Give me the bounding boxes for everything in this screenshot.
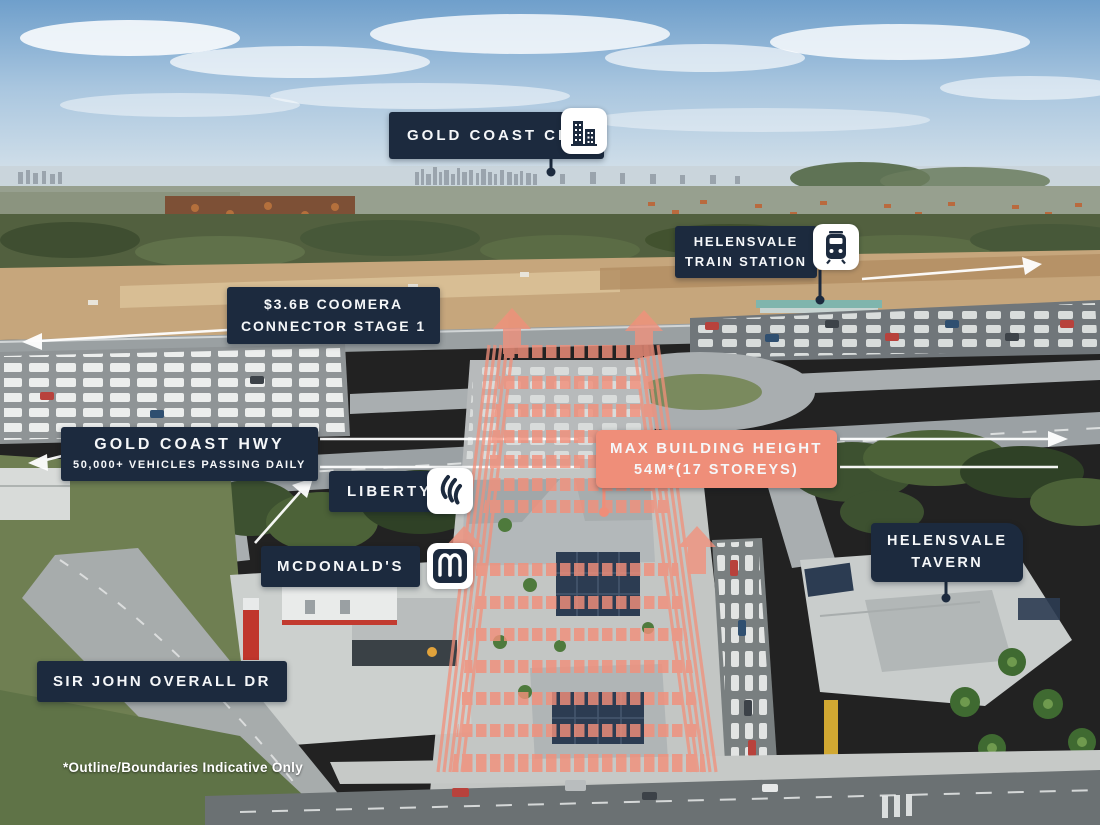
sir-john-text: SIR JOHN OVERALL DR <box>53 671 271 692</box>
mcdonalds-arches-icon <box>427 543 473 589</box>
coomera-line2: CONNECTOR STAGE 1 <box>241 317 426 337</box>
max-height-line2: 54M*(17 STOREYS) <box>610 460 823 480</box>
hwy-line1: GOLD COAST HWY <box>73 434 306 456</box>
liberty-text: LIBERTY <box>347 481 432 502</box>
hwy-line2: 50,000+ VEHICLES PASSING DAILY <box>73 458 306 473</box>
mcdonalds-label: MCDONALD'S <box>261 546 420 587</box>
coomera-connector-label: $3.6B COOMERA CONNECTOR STAGE 1 <box>227 287 440 344</box>
coomera-line1: $3.6B COOMERA <box>241 295 426 315</box>
train-icon <box>813 224 859 270</box>
max-building-height-label: MAX BUILDING HEIGHT 54M*(17 STOREYS) <box>596 430 837 488</box>
mcdonalds-text: MCDONALD'S <box>277 556 404 577</box>
boundaries-disclaimer: *Outline/Boundaries Indicative Only <box>63 760 303 775</box>
tavern-line2: TAVERN <box>887 553 1007 573</box>
train-station-line1: HELENSVALE <box>685 233 807 251</box>
train-station-line2: TRAIN STATION <box>685 253 807 271</box>
site-boundary-outline <box>438 308 716 772</box>
sir-john-overall-dr-label: SIR JOHN OVERALL DR <box>37 661 287 702</box>
aerial-site-marketing-image: GOLD COAST CBD HELENSVALE TRAIN STATION <box>0 0 1100 825</box>
tavern-line1: HELENSVALE <box>887 531 1007 551</box>
liberty-flame-icon <box>427 468 473 514</box>
gold-coast-hwy-label: GOLD COAST HWY 50,000+ VEHICLES PASSING … <box>61 427 318 481</box>
helensvale-train-station-label: HELENSVALE TRAIN STATION <box>675 226 817 278</box>
max-height-line1: MAX BUILDING HEIGHT <box>610 438 823 459</box>
city-buildings-icon <box>561 108 607 154</box>
helensvale-tavern-label: HELENSVALE TAVERN <box>871 523 1023 582</box>
